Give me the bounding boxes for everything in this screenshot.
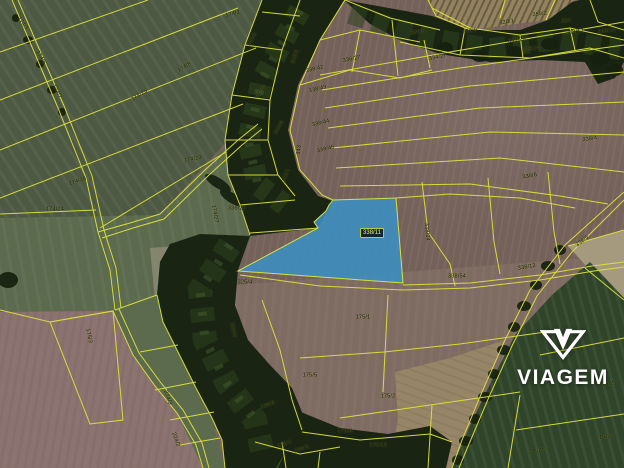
brand-watermark: VIAGEM (505, 328, 621, 390)
viagem-diamond-logo-icon (540, 328, 586, 362)
highlighted-parcel-label: 338/11 (360, 228, 384, 238)
map-overlay-svg (0, 0, 624, 468)
cadastral-map[interactable]: 174/2174/3174/5174/7174/9174/25174/23174… (0, 0, 624, 468)
brand-name: VIAGEM (505, 366, 621, 390)
